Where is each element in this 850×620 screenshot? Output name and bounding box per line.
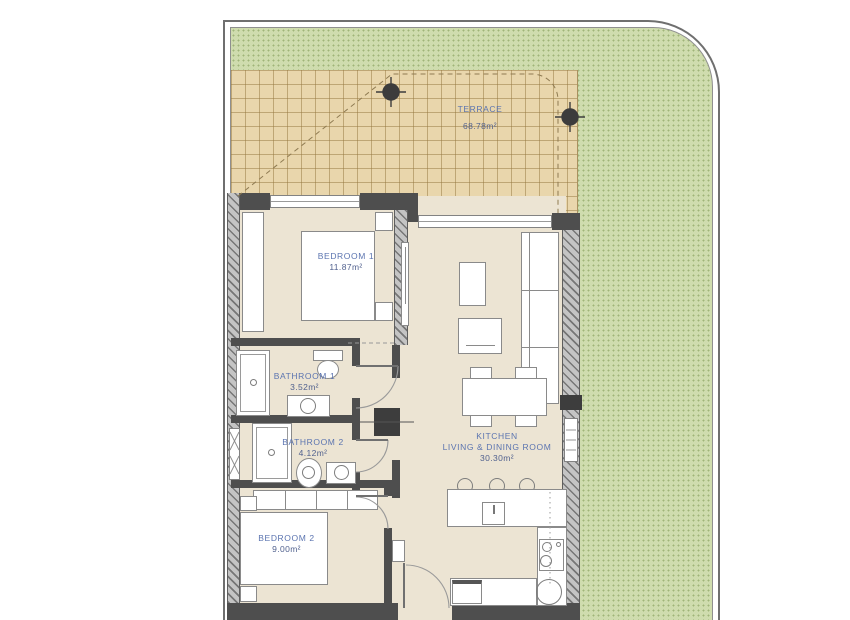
room-name: BEDROOM 2 [229,533,344,544]
top-wall-pier-left [240,193,270,210]
kitchen-bar-counter [447,489,567,527]
floor-plan-canvas: TERRACE 68.78m² BEDROOM 1 11.87m² BATHRO… [0,0,850,620]
hall-east-wall-a [392,345,400,378]
room-area: 4.12m² [257,448,369,459]
right-wall-junction-block [560,395,582,410]
room-area: 3.52m² [247,382,362,393]
bedroom1-wardrobe [242,212,264,332]
room-name: LIVING & DINING ROOM [417,442,577,453]
armchair [458,318,502,354]
room-name: TERRACE [400,104,560,115]
entry-door-jamb-cap [392,540,405,562]
round-sink [536,579,562,605]
room-area: 11.87m² [286,262,406,273]
bedroom2-label: BEDROOM 2 9.00m² [229,533,344,555]
room-name: BATHROOM 2 [257,437,369,448]
dining-table [462,378,547,416]
bedroom1-nightstand-top [375,212,393,231]
living-sliding-door [418,215,552,228]
bedroom1-nightstand-bottom [375,302,393,321]
washbasin [300,398,316,414]
bedroom1-label: BEDROOM 1 11.87m² [286,251,406,273]
bottom-wall-left [227,603,398,620]
hall-east-wall-b [392,460,400,498]
terrace-label: TERRACE 68.78m² [400,104,560,132]
bedroom2-east-wall-a [384,488,392,496]
kitchen-sink [482,502,505,525]
toilet-inner [302,466,315,479]
hall-west-wall-a [352,338,360,366]
cooktop-burner-small [556,542,561,547]
room-area: 68.78m² [400,121,560,132]
cooktop-burner [540,555,552,567]
room-name: KITCHEN [417,431,577,442]
kitchen-living-label: KITCHEN LIVING & DINING ROOM 30.30m² [417,431,577,464]
bedroom2-nightstand-bottom [240,586,257,602]
bathroom1-label: BATHROOM 1 3.52m² [247,371,362,393]
bathroom2-label: BATHROOM 2 4.12m² [257,437,369,459]
room-area: 30.30m² [417,453,577,464]
room-name: BEDROOM 1 [286,251,406,262]
bedroom1-window [270,195,360,208]
hall-pier-block [374,408,400,436]
cooktop-burner [542,542,552,552]
washbasin [334,465,349,480]
kitchen-appliance [452,580,482,604]
coffee-table [459,262,486,306]
top-wall-pier-right [552,213,580,230]
bedroom2-wardrobe [253,490,378,510]
terrace-area [231,70,578,213]
bathroom2-window [229,428,240,480]
room-name: BATHROOM 1 [247,371,362,382]
bedroom2-nightstand-top [240,496,257,511]
room-area: 9.00m² [229,544,344,555]
bedroom1-bed [301,231,375,321]
bedroom1-bathroom1-wall [231,338,360,346]
